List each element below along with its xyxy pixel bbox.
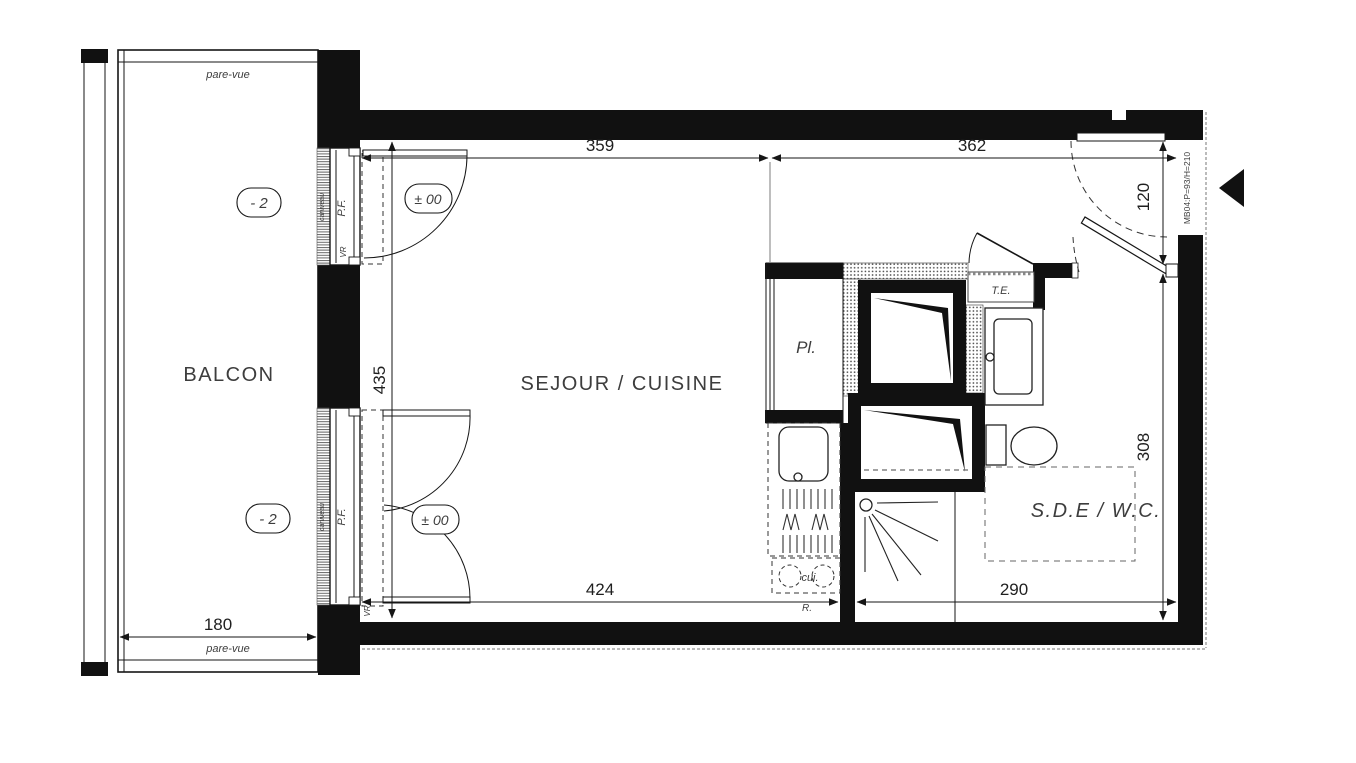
label-drain-channel-upper: caniveau — [319, 193, 326, 221]
wall-bottom — [318, 622, 1203, 645]
wall-balcony-pier-top — [318, 50, 360, 148]
toilet-tank — [986, 425, 1006, 465]
kitchen-drainboard-lines-top — [783, 489, 832, 509]
window-lower-jamb-bottom — [349, 597, 360, 605]
window-lower-swing-arc-top — [384, 414, 470, 511]
duct-lower — [848, 393, 985, 492]
entrance-door — [1071, 133, 1244, 277]
balcony-structure — [81, 49, 318, 676]
label-drain-channel-lower: caniveau — [319, 503, 326, 531]
level-text-floor-bottom: ± 00 — [421, 512, 448, 528]
label-electrical-panel: T.E. — [991, 285, 1010, 297]
label-cooktop: cui. — [801, 572, 818, 584]
toilet — [986, 425, 1057, 465]
door-jamb-sde — [1072, 263, 1078, 278]
dim-text-359: 359 — [586, 136, 614, 155]
kitchen-drainboard-lines-bottom — [783, 535, 832, 553]
label-fridge: R. — [802, 603, 812, 614]
wall-closet-top — [765, 263, 843, 279]
toilet-bowl — [1011, 427, 1057, 465]
washbasin — [985, 308, 1043, 405]
level-text-floor-top: ± 00 — [414, 191, 441, 207]
kitchen-drainboard-zigzag — [783, 514, 828, 530]
floorplan-svg: - 2 - 2 ± 00 ± 00 BALCON SEJOUR / CUISIN… — [0, 0, 1356, 763]
window-upper-leaf-open — [363, 150, 467, 156]
dim-text-308: 308 — [1134, 433, 1153, 461]
level-text-balcony-top: - 2 — [250, 195, 268, 212]
screen-wall-post-bottom — [81, 662, 108, 676]
dim-text-435: 435 — [370, 366, 389, 394]
shower-spray-lines — [865, 502, 938, 581]
walls — [318, 50, 1203, 675]
window-lower-leaf-open-top — [383, 410, 470, 416]
wall-balcony-pier-bottom — [318, 605, 360, 675]
kitchen-sink-drain — [794, 473, 802, 481]
wall-balcony-pier-middle — [318, 265, 360, 408]
window-lower-frame — [330, 408, 360, 605]
dim-text-120: 120 — [1134, 183, 1153, 211]
entrance-door-leaf-midswing — [1081, 217, 1169, 273]
label-roller-shutter-lower: VR — [363, 605, 372, 616]
label-pare-vue-bottom: pare-vue — [205, 643, 249, 655]
entrance-door-leaf-open — [1077, 133, 1165, 141]
room-label-closet: Pl. — [796, 338, 816, 357]
sde-door-swing-arc — [969, 233, 977, 263]
window-lower-jamb-top — [349, 408, 360, 416]
sde-door — [969, 233, 1033, 264]
entrance-arrow-icon — [1219, 169, 1244, 207]
washbasin-bowl — [994, 319, 1032, 394]
label-french-window-upper: P.F. — [336, 199, 348, 216]
level-text-balcony-bottom: - 2 — [259, 511, 277, 528]
dim-text-180: 180 — [204, 615, 232, 634]
washbasin-faucet — [986, 353, 994, 361]
entrance-door-hinge-block — [1166, 264, 1178, 277]
dim-text-362: 362 — [958, 136, 986, 155]
cooktop-burner-left — [779, 565, 801, 587]
window-upper-jamb-top — [349, 148, 360, 156]
floorplan-page: - 2 - 2 ± 00 ± 00 BALCON SEJOUR / CUISIN… — [0, 0, 1356, 763]
label-entry-door-ref: MB04:P=93/H=210 — [1182, 152, 1192, 225]
dim-text-424: 424 — [586, 580, 614, 599]
sde-door-leaf — [977, 233, 1033, 264]
label-french-window-lower: P.F. — [336, 508, 348, 525]
room-label-shower-wc: S.D.E / W.C. — [1031, 500, 1162, 522]
duct-upper — [858, 280, 966, 396]
kitchen-sink-basin — [779, 427, 828, 481]
label-pare-vue-top: pare-vue — [205, 69, 249, 81]
wall-right — [1178, 235, 1203, 645]
room-label-living-kitchen: SEJOUR / CUISINE — [521, 373, 724, 395]
shower-head — [860, 499, 872, 511]
dim-text-290: 290 — [1000, 580, 1028, 599]
wall-top-notch — [1112, 110, 1126, 120]
duct-upper-inner — [871, 293, 953, 383]
stipple-band-top — [843, 263, 968, 279]
stipple-strip-left — [843, 279, 860, 396]
balcony-parapet-outline — [118, 50, 318, 672]
stipple-strip-right — [966, 305, 983, 393]
wall-sde-top-return — [1033, 263, 1045, 310]
wall-closet-bottom — [765, 410, 843, 423]
shutter-box-upper — [362, 151, 383, 264]
screen-wall-post-top — [81, 49, 108, 63]
label-roller-shutter-upper: VR — [339, 246, 348, 257]
shutter-box-lower — [362, 410, 383, 606]
room-label-balcony: BALCON — [183, 364, 274, 386]
window-upper-jamb-bottom — [349, 257, 360, 265]
kitchen — [768, 423, 840, 593]
